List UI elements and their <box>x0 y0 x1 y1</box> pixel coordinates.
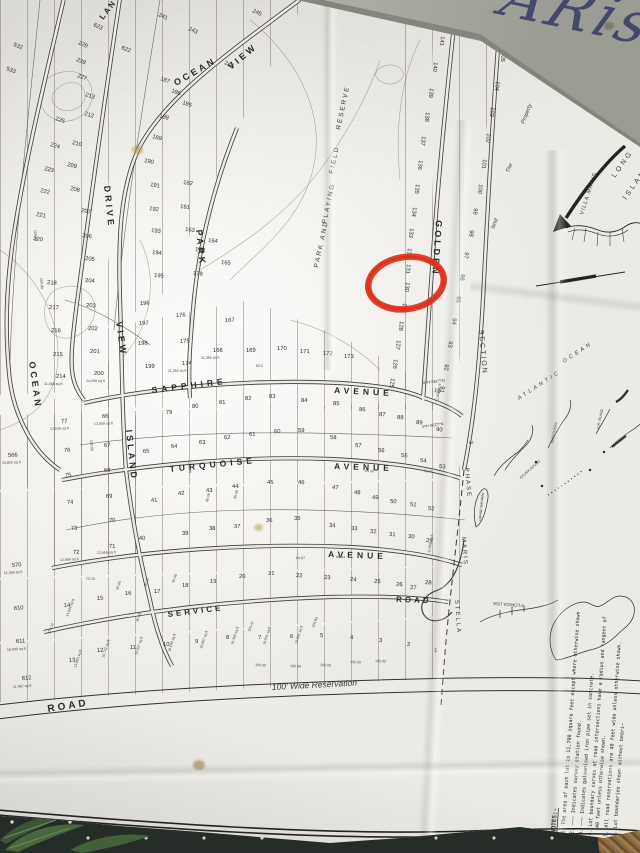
lot-number: 138 <box>423 112 430 122</box>
lot-number: 74 <box>67 500 75 506</box>
area-label: GRAND BAHAMA <box>478 492 485 521</box>
area-label: Property <box>520 102 534 125</box>
stain <box>132 146 143 154</box>
dimension-label: 11,356 sq ft <box>168 369 187 373</box>
lot-number: 3 <box>379 638 383 644</box>
area-label: PARK AND <box>313 220 330 269</box>
lot-number: 95 <box>454 296 461 303</box>
lot-number: 161 <box>180 204 190 211</box>
lot-number: 168 <box>213 348 223 354</box>
lot-number: 5 <box>320 633 323 639</box>
lot-number: 31 <box>389 532 396 538</box>
lot-number: 82 <box>245 396 251 402</box>
lot-number: 36 <box>266 518 272 524</box>
lot-number: 35 <box>294 516 301 522</box>
dimension-label: 14,006 sq ft <box>86 379 105 383</box>
lot-number: 67 <box>104 443 111 449</box>
lot-number: 38 <box>209 526 216 532</box>
lot-number: 49 <box>372 495 379 501</box>
lot-number: 98 <box>467 230 474 237</box>
lot-number: 32 <box>370 529 377 535</box>
lot-number: 195 <box>154 273 164 280</box>
stain <box>604 22 614 30</box>
lot-number: 125 <box>388 378 395 388</box>
lot-number: 55 <box>401 453 408 459</box>
lot-number: 33 <box>351 526 358 532</box>
lot-number: 51 <box>410 502 417 508</box>
lot-number: 53 <box>439 464 446 471</box>
lot-number: 179 <box>193 271 203 278</box>
area-label: EXUMA SOUND <box>519 459 541 480</box>
dimension-label: 100.00 <box>255 663 266 668</box>
lot-number: 216 <box>51 328 61 334</box>
lot-number: 72 <box>73 550 80 556</box>
lot-number: 102 <box>484 133 491 143</box>
photo-of-plat-map: ARis <box>0 0 640 853</box>
street-label: ROAD <box>47 698 90 715</box>
stain <box>193 760 205 770</box>
lot-number: 45 <box>267 480 273 486</box>
lot-number: 7 <box>258 635 261 641</box>
lot-number: 86 <box>359 407 366 413</box>
area-label: land <box>490 217 500 230</box>
dimension-label: 100.00 <box>320 663 331 668</box>
lot-number: 93 <box>446 341 453 348</box>
lot-number: 611 <box>16 638 26 645</box>
lot-number: 165 <box>221 260 231 267</box>
lot-number: 41 <box>151 498 158 504</box>
lot-number: 127 <box>394 340 401 350</box>
lot-number: 44 <box>232 484 239 490</box>
lot-number: 37 <box>234 524 240 530</box>
lot-number: 193 <box>151 228 161 235</box>
dimension-label: 98.04 <box>336 555 345 559</box>
lot-number: 30 <box>408 534 415 540</box>
lot-number: 133 <box>407 228 414 238</box>
lot-number: 610 <box>14 605 24 612</box>
lot-number: 199 <box>145 364 155 370</box>
area-label: RESERVE <box>335 85 351 130</box>
lot-number: 68 <box>104 468 111 474</box>
lot-number: 61 <box>249 432 255 438</box>
lot-number: 58 <box>330 435 337 441</box>
lot-number: 22 <box>296 573 303 579</box>
lot-number: 103 <box>488 107 495 117</box>
lot-number: 175 <box>180 339 190 345</box>
dimension-label: 12,656 sq ft <box>94 421 113 426</box>
lot-number: 46 <box>298 480 305 486</box>
area-label: OCEAN <box>562 341 594 365</box>
area-label: CAT ISLAND <box>596 408 604 429</box>
lot-number: 198 <box>138 341 148 347</box>
stain <box>254 524 263 531</box>
area-label: FIELD <box>328 145 341 174</box>
lot-number: 50 <box>390 499 397 505</box>
lot-number: 59 <box>298 428 305 434</box>
lot-number: 566 <box>8 453 18 459</box>
dimension-label: 12,656 sq ft <box>97 550 116 555</box>
lot-number: 40 <box>139 536 146 542</box>
area-label: ATLANTIC <box>516 369 562 402</box>
lot-number: 612 <box>22 675 32 682</box>
lot-number: 197 <box>139 321 149 327</box>
lot-number: 83 <box>269 394 275 400</box>
lot-number: 80 <box>192 404 199 410</box>
lot-number: 19 <box>210 579 216 585</box>
lot-number: 47 <box>332 485 339 491</box>
dimension-label: 73.15 <box>86 577 95 581</box>
lot-number: 73 <box>71 526 78 532</box>
lot-number: 66 <box>102 414 109 420</box>
lot-number: 218 <box>47 280 57 287</box>
lot-number: 28 <box>425 580 432 586</box>
street-label: AVENUE <box>334 461 393 473</box>
lot-number: 217 <box>49 305 59 311</box>
lot-number: 23 <box>324 575 331 581</box>
lot-number: 89 <box>416 420 423 426</box>
lot-number: 100 <box>476 184 483 194</box>
lot-number: 48 <box>354 490 361 496</box>
lot-number: 141 <box>438 36 445 46</box>
lot-number: 85 <box>333 401 340 407</box>
lot-number: 2 <box>407 642 411 648</box>
dimension-label: 95.18 <box>365 469 374 473</box>
area-label: The <box>505 163 514 174</box>
lot-number: 26 <box>396 582 403 588</box>
lot-number: 178 <box>195 247 205 254</box>
lot-number: 203 <box>86 303 96 309</box>
lot-number: 194 <box>152 250 163 257</box>
lot-number: 136 <box>416 160 423 170</box>
dimension-label: 61.10 <box>424 469 433 473</box>
lot-number: 137 <box>419 136 426 146</box>
lot-number: 97 <box>462 252 469 259</box>
lot-number: 196 <box>140 300 150 306</box>
lot-number: 131 <box>404 264 411 274</box>
area-label: PLAYING <box>321 182 337 224</box>
lot-number: 15 <box>97 596 104 602</box>
lot-number: 1 <box>434 648 438 654</box>
lot-number: 76 <box>64 448 71 454</box>
plat-map-drawing: LANOCEANVIEWDRIVEOCEANVIEWISLANDPARKGOLD… <box>0 0 640 853</box>
lot-number: 71 <box>109 544 116 550</box>
lot-number: 201 <box>90 349 100 355</box>
dimension-label: 11,356 sq ft <box>44 382 63 386</box>
lot-number: 202 <box>88 326 98 332</box>
lot-number: 205 <box>85 256 95 263</box>
lot-number: 99 <box>471 208 478 215</box>
street-label: ROAD <box>396 595 432 605</box>
dimension-label: 100.00 <box>350 660 361 665</box>
dimension-label: 11,356 sq ft <box>201 356 220 360</box>
lot-number: 77 <box>61 419 68 425</box>
lot-number: 172 <box>323 351 333 357</box>
dimension-label: 84.67 <box>296 556 305 560</box>
lot-number: 204 <box>85 278 96 285</box>
lot-number: 126 <box>391 359 398 369</box>
lot-number: 79 <box>166 410 173 416</box>
lot-number: 135 <box>413 184 420 194</box>
lot-number: 130 <box>403 282 410 292</box>
dimension-label: 100.00 <box>290 664 301 669</box>
lot-number: 87 <box>379 412 386 418</box>
lot-number: 200 <box>94 371 104 377</box>
lot-number: 18 <box>182 583 188 589</box>
lot-number: 27 <box>410 585 417 591</box>
lot-number: 81 <box>219 400 226 406</box>
lot-number: 164 <box>208 238 219 245</box>
lot-number: 20 <box>239 574 246 580</box>
lot-number: 75 <box>65 473 72 479</box>
lot-number: 171 <box>300 349 310 355</box>
lot-number: 163 <box>185 227 195 234</box>
lot-number: 215 <box>53 352 63 358</box>
lot-number: 56 <box>378 448 385 454</box>
lot-number: 8 <box>226 635 229 641</box>
lot-number: 570 <box>12 562 22 569</box>
dimension-label: 12,636 sq ft <box>50 426 69 431</box>
dimension-label: 82.5 <box>256 364 263 368</box>
lot-number: 69 <box>106 494 113 500</box>
lot-number: 214 <box>56 374 66 380</box>
area-label: ELEUTHERA <box>550 421 558 443</box>
lot-number: 88 <box>397 415 404 421</box>
area-label: FLORIDA USA <box>493 601 523 608</box>
lot-number: 104 <box>493 81 500 92</box>
lot-number: 9 <box>195 639 198 645</box>
lot-number: 16 <box>125 591 132 597</box>
lot-number: 54 <box>420 458 428 464</box>
lot-number: 84 <box>301 398 308 404</box>
lot-number: 34 <box>329 523 336 529</box>
lot-number: 42 <box>178 491 185 497</box>
dimension-label: 100.00 <box>375 659 386 664</box>
lot-number: 92 <box>442 364 449 371</box>
lot-number: 174 <box>182 361 193 367</box>
dimension-label: 10,852 sq ft <box>2 460 21 465</box>
area-label: STELLA <box>453 600 461 635</box>
lot-number: 6 <box>290 634 293 640</box>
notes-block: NOTES:- 1. The area of each lot is 11,70… <box>549 609 640 838</box>
lot-number: 64 <box>171 444 178 450</box>
lot-number: 169 <box>246 348 256 354</box>
lot-number: 57 <box>355 443 362 449</box>
lot-number: 140 <box>431 62 438 72</box>
lot-number: 24 <box>350 577 358 583</box>
lot-number: 25 <box>374 579 381 585</box>
lot-number: 134 <box>410 207 417 218</box>
archipelago-arrow <box>616 390 628 402</box>
lot-number: 21 <box>268 571 275 577</box>
lot-number: 60 <box>274 429 280 435</box>
lot-number: 17 <box>154 589 161 595</box>
lot-number: 139 <box>427 88 434 98</box>
lot-number: 70 <box>109 518 116 524</box>
lot-number: 176 <box>176 312 186 318</box>
lot-number: 170 <box>277 346 287 352</box>
lot-number: 101 <box>480 159 487 169</box>
map-paper: LANOCEANVIEWDRIVEOCEANVIEWISLANDPARKGOLD… <box>0 0 640 853</box>
lot-number: 96 <box>458 274 465 281</box>
lot-number: 173 <box>344 354 354 360</box>
lot-number: 39 <box>182 531 189 537</box>
lot-number: 128 <box>397 321 404 331</box>
lot-number: 167 <box>225 318 235 324</box>
lot-number: 62 <box>224 435 230 441</box>
lot-number: 63 <box>199 440 206 446</box>
lot-number: 52 <box>428 506 435 512</box>
lot-number: 65 <box>143 449 150 455</box>
lot-number: 90 <box>436 427 443 433</box>
